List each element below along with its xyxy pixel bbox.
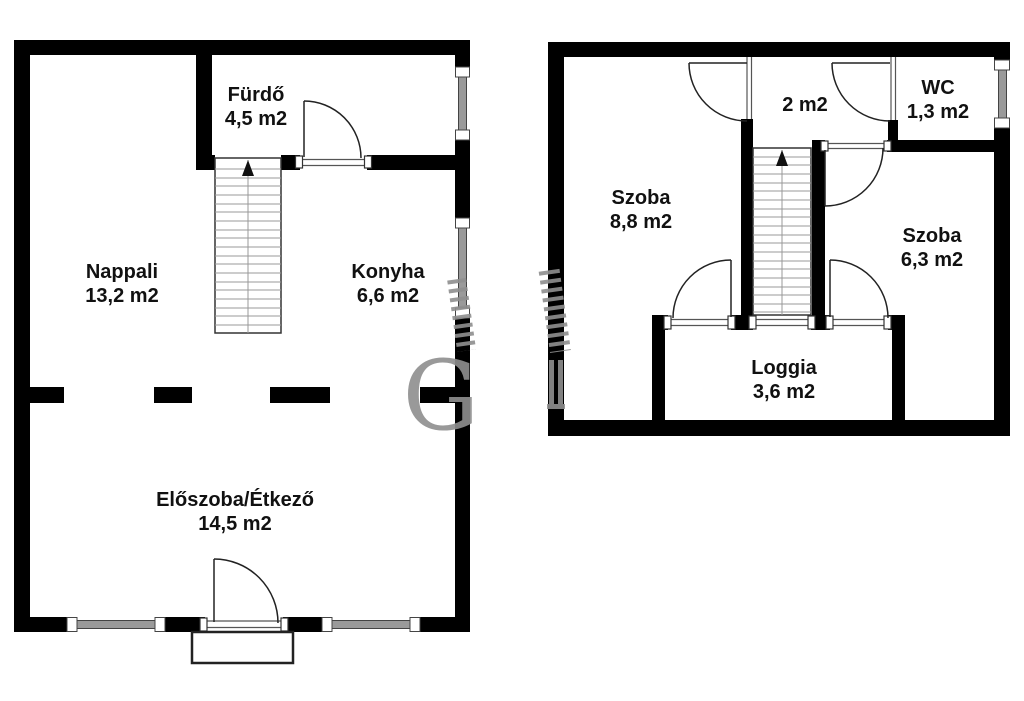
watermark-letter-fragment — [549, 360, 554, 408]
watermark-letter: G — [403, 340, 480, 452]
room-name: WC — [907, 76, 969, 100]
room-label-furdo: Fürdő 4,5 m2 — [225, 83, 287, 131]
room-area: 1,3 m2 — [907, 100, 969, 124]
watermark: G — [403, 265, 571, 452]
room-area: 2 m2 — [782, 93, 828, 117]
room-label-nappali: Nappali 13,2 m2 — [85, 260, 158, 308]
room-label-konyha: Konyha 6,6 m2 — [351, 260, 424, 308]
room-name: Előszoba/Étkező — [156, 488, 314, 512]
door-wc — [832, 63, 890, 121]
room-name: Szoba — [901, 224, 963, 248]
room-label-eloszoba: Előszoba/Étkező 14,5 m2 — [156, 488, 314, 536]
door-szoba63-top — [825, 148, 883, 206]
room-label-loggia: Loggia 3,6 m2 — [751, 356, 817, 404]
wc-window — [994, 60, 1010, 128]
room-area: 4,5 m2 — [225, 107, 287, 131]
room-area: 14,5 m2 — [156, 512, 314, 536]
room-name: Loggia — [751, 356, 817, 380]
room-label-landing: 2 m2 — [782, 93, 828, 117]
door-szoba63-loggia — [830, 260, 888, 318]
room-area: 13,2 m2 — [85, 284, 158, 308]
room-area: 6,3 m2 — [901, 248, 963, 272]
room-label-szoba-6-3: Szoba 6,3 m2 — [901, 224, 963, 272]
room-name: Konyha — [351, 260, 424, 284]
entry-step — [192, 632, 293, 663]
ground-stairs — [215, 158, 281, 333]
watermark-letter-fragment — [558, 360, 563, 408]
room-label-szoba-8-8: Szoba 8,8 m2 — [610, 186, 672, 234]
door-szoba88-landing — [689, 63, 747, 121]
watermark-letter-fragment — [547, 404, 565, 409]
room-name: Fürdő — [225, 83, 287, 107]
room-name: Szoba — [610, 186, 672, 210]
door-entrance — [214, 559, 278, 623]
room-area: 3,6 m2 — [751, 380, 817, 404]
floor-plan-svg: G — [0, 0, 1024, 701]
room-area: 6,6 m2 — [351, 284, 424, 308]
watermark-hatch-band — [538, 265, 571, 353]
ground-floor-plan — [14, 40, 470, 663]
room-area: 8,8 m2 — [610, 210, 672, 234]
upper-stairs — [753, 148, 811, 315]
room-name: Nappali — [85, 260, 158, 284]
room-label-wc: WC 1,3 m2 — [907, 76, 969, 124]
door-furdo — [304, 101, 361, 158]
door-szoba88-loggia — [673, 260, 731, 318]
floorplan-image: G Fürdő 4,5 m2 Nappali 13,2 m2 Konyha 6,… — [0, 0, 1024, 701]
